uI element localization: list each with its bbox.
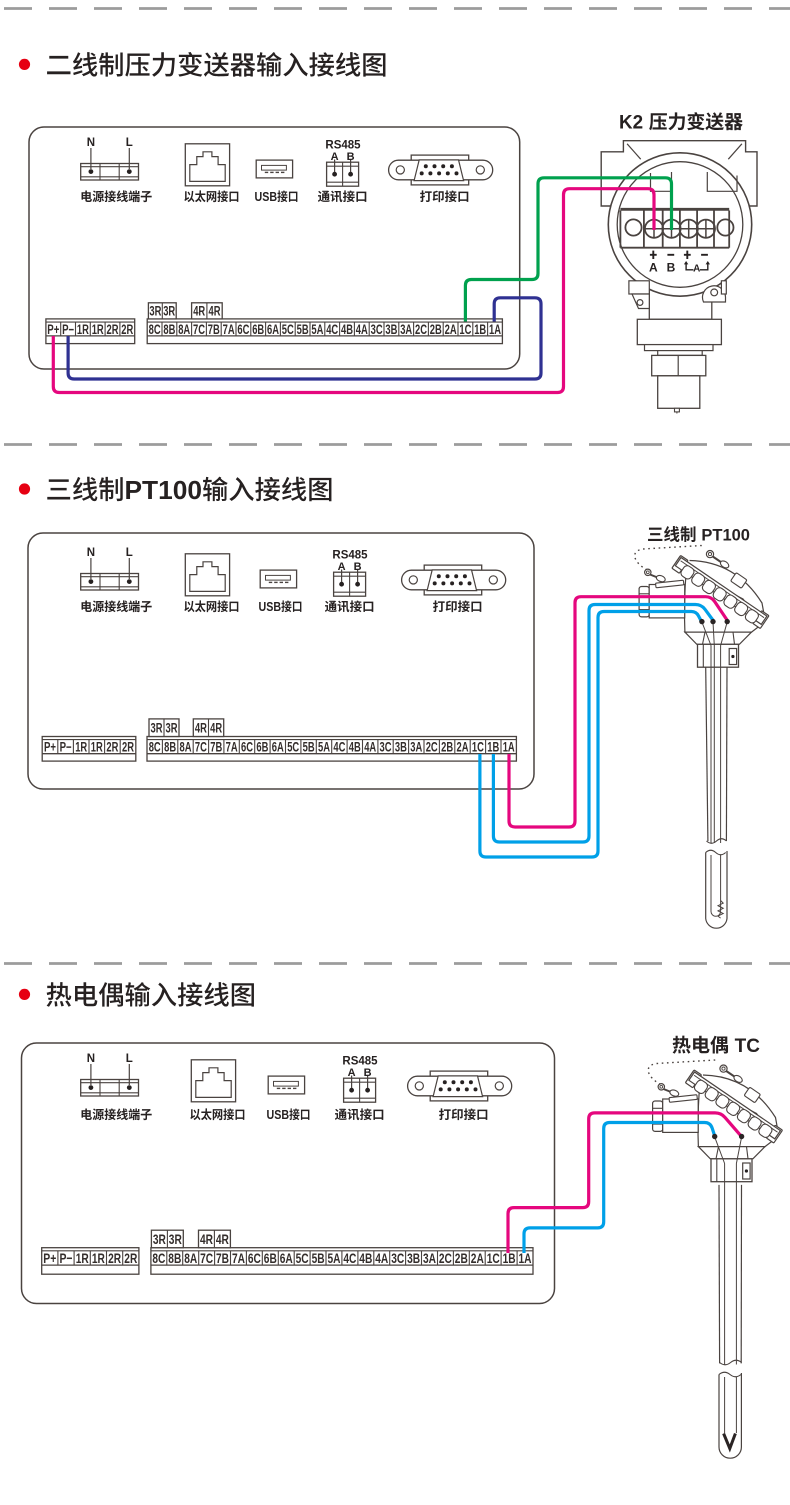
svg-text:7C: 7C [200,1250,213,1266]
svg-text:6C: 6C [241,740,253,755]
svg-text:1C: 1C [487,1250,500,1266]
svg-text:6C: 6C [248,1250,261,1266]
svg-text:6A: 6A [280,1250,293,1266]
svg-text:3A: 3A [410,740,422,755]
svg-text:RS485: RS485 [325,140,361,152]
svg-text:TC: TC [735,1036,761,1057]
svg-text:4R: 4R [210,721,222,736]
svg-text:4C: 4C [326,322,338,337]
svg-text:2R: 2R [106,740,118,755]
svg-text:8B: 8B [168,1250,181,1266]
svg-text:B: B [347,151,355,163]
svg-text:5B: 5B [312,1250,325,1266]
svg-text:4B: 4B [341,322,353,337]
svg-text:1R: 1R [91,740,103,755]
svg-text:7A: 7A [223,322,235,337]
svg-text:4R: 4R [193,304,205,319]
svg-text:N: N [87,1053,95,1065]
svg-text:1A: 1A [503,740,515,755]
svg-text:2A: 2A [471,1250,484,1266]
svg-text:5C: 5C [287,740,299,755]
svg-text:2C: 2C [415,322,427,337]
svg-text:3B: 3B [385,322,397,337]
svg-text:3R: 3R [149,304,161,319]
svg-text:6C: 6C [237,322,249,337]
svg-text:8C: 8C [149,740,161,755]
svg-text:P+: P+ [47,322,59,337]
svg-text:A: A [338,561,346,573]
svg-text:N: N [87,137,95,149]
svg-text:L: L [126,137,133,149]
svg-text:6B: 6B [264,1250,277,1266]
svg-text:3B: 3B [407,1250,420,1266]
svg-text:P−: P− [62,322,74,337]
svg-text:4R: 4R [209,304,221,319]
svg-text:8A: 8A [184,1250,197,1266]
svg-text:2R: 2R [122,740,134,755]
svg-text:A: A [331,151,339,163]
svg-text:3R: 3R [163,304,175,319]
svg-text:3R: 3R [166,721,178,736]
svg-text:P+: P+ [43,1250,56,1266]
svg-text:8B: 8B [163,322,175,337]
svg-text:4B: 4B [349,740,361,755]
svg-text:1C: 1C [472,740,484,755]
svg-text:RS485: RS485 [342,1056,378,1068]
svg-text:5B: 5B [297,322,309,337]
svg-text:1R: 1R [76,1250,89,1266]
svg-text:2B: 2B [441,740,453,755]
svg-text:A: A [348,1067,356,1079]
svg-text:4R: 4R [195,721,207,736]
svg-text:4A: 4A [364,740,376,755]
svg-text:4A: 4A [356,322,368,337]
svg-text:1C: 1C [459,322,471,337]
svg-text:B: B [667,260,676,274]
svg-text:P−: P− [60,1250,73,1266]
svg-text:3A: 3A [400,322,412,337]
svg-text:3C: 3C [371,322,383,337]
svg-text:8A: 8A [178,322,190,337]
svg-text:1R: 1R [92,322,104,337]
svg-text:6B: 6B [252,322,264,337]
svg-text:3C: 3C [380,740,392,755]
svg-text:4R: 4R [200,1231,213,1247]
svg-text:4C: 4C [343,1250,356,1266]
svg-text:B: B [364,1067,372,1079]
svg-text:USB: USB [255,190,278,204]
svg-text:1B: 1B [487,740,499,755]
svg-text:4C: 4C [333,740,345,755]
svg-text:2A: 2A [445,322,457,337]
svg-text:3B: 3B [395,740,407,755]
svg-text:PT100: PT100 [125,475,202,505]
svg-text:1R: 1R [77,322,89,337]
svg-text:USB: USB [259,600,282,614]
svg-text:4R: 4R [216,1231,229,1247]
svg-text:USB: USB [267,1108,290,1122]
svg-text:3A: 3A [423,1250,436,1266]
svg-text:7A: 7A [226,740,238,755]
svg-text:6B: 6B [256,740,268,755]
svg-text:5C: 5C [282,322,294,337]
svg-text:7C: 7C [193,322,205,337]
svg-text:A: A [693,264,700,275]
svg-text:5B: 5B [303,740,315,755]
svg-text:2B: 2B [430,322,442,337]
svg-text:2R: 2R [108,1250,121,1266]
svg-text:2A: 2A [457,740,469,755]
svg-text:B: B [354,561,362,573]
svg-text:7B: 7B [208,322,220,337]
svg-text:8A: 8A [180,740,192,755]
svg-text:2B: 2B [455,1250,468,1266]
svg-text:1R: 1R [92,1250,105,1266]
svg-text:RS485: RS485 [332,550,368,562]
svg-text:4B: 4B [359,1250,372,1266]
svg-text:5A: 5A [318,740,330,755]
svg-text:4A: 4A [375,1250,388,1266]
svg-text:8C: 8C [152,1250,165,1266]
svg-text:3C: 3C [391,1250,404,1266]
svg-text:3R: 3R [151,721,163,736]
svg-text:8B: 8B [164,740,176,755]
svg-text:A: A [649,260,658,274]
svg-text:2C: 2C [439,1250,452,1266]
svg-text:1R: 1R [75,740,87,755]
svg-text:2R: 2R [124,1250,137,1266]
svg-text:2R: 2R [107,322,119,337]
svg-text:L: L [126,547,133,559]
svg-text:2C: 2C [426,740,438,755]
svg-text:1A: 1A [489,322,501,337]
svg-text:PT100: PT100 [701,525,750,544]
svg-text:7B: 7B [216,1250,229,1266]
svg-text:P+: P+ [44,740,56,755]
svg-text:7C: 7C [195,740,207,755]
svg-text:8C: 8C [149,322,161,337]
svg-text:7B: 7B [210,740,222,755]
svg-text:5A: 5A [328,1250,341,1266]
svg-text:5A: 5A [311,322,323,337]
svg-text:L: L [126,1053,133,1065]
svg-text:5C: 5C [296,1250,309,1266]
svg-text:6A: 6A [272,740,284,755]
svg-text:3R: 3R [169,1231,182,1247]
svg-text:6A: 6A [267,322,279,337]
svg-text:K2: K2 [619,112,643,133]
svg-text:1B: 1B [474,322,486,337]
svg-text:N: N [87,547,95,559]
svg-text:3R: 3R [153,1231,166,1247]
svg-text:P−: P− [60,740,72,755]
svg-text:2R: 2R [121,322,133,337]
svg-text:7A: 7A [232,1250,245,1266]
